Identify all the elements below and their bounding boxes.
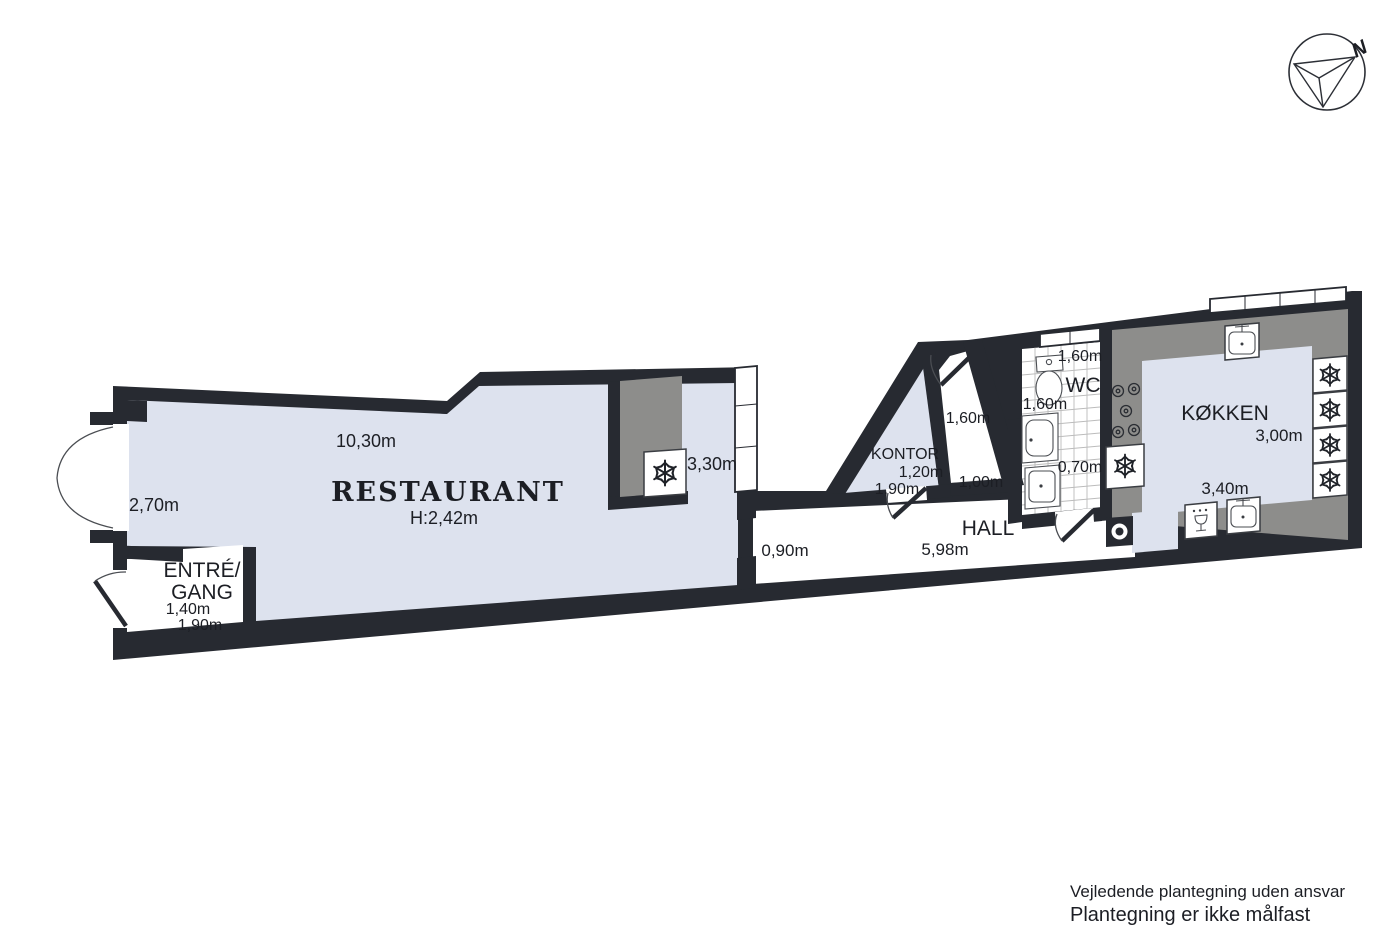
label-wc-dim-top: 1,60m [1058,348,1102,365]
label-hall-length: 5,98m [921,540,968,559]
compass: N [1289,34,1372,110]
kokken-left-freezer [1106,444,1144,489]
label-entre-dim2: 1,90m [178,617,222,634]
label-restaurant-dim-top: 10,30m [336,431,396,451]
label-kontor-dim1: 1,20m [899,464,943,481]
wc-left-wall [1008,418,1022,524]
kokken-right-freezers [1313,356,1347,498]
label-entre-line1: ENTRÉ/ [163,559,240,582]
label-mellemgang-dim2: 1,00m [959,474,1003,491]
label-kokken-dim-right: 3,00m [1255,426,1302,445]
kokken-top-sink-icon [1225,323,1259,360]
label-wc: WC [1066,374,1101,397]
compass-needle [1294,57,1355,107]
dishwasher-icon [1185,502,1217,539]
label-hall-door: 0,90m [761,541,808,560]
label-hall: HALL [962,517,1015,540]
entrance-double-door [57,412,129,543]
kokken-bottom-sink-icon [1227,497,1260,534]
label-kontor-dim2: 1,90m [875,481,919,498]
wc-sink-icon [1022,413,1058,463]
restaurant-right-wall-upper [737,488,756,520]
disclaimer-line1: Vejledende plantegning uden ansvar [1070,882,1345,901]
label-restaurant-dim-left: 2,70m [129,495,179,515]
pillar-step [420,400,447,414]
pillar-left [127,400,147,422]
window-restaurant-right [735,366,757,492]
label-restaurant-height: H:2,42m [410,508,478,528]
label-restaurant: RESTAURANT [331,477,565,508]
bar-freezer [644,449,686,497]
floor-drain-icon [1106,516,1133,547]
restaurant-right-wall-stub [737,556,756,590]
label-wc-dim-left: 1,60m [1023,396,1067,413]
entre-right-wall [243,547,256,621]
label-kokken: KØKKEN [1181,402,1269,425]
bar-left-wall [608,381,620,499]
label-mellemgang-dim1: 1,60m [946,410,990,427]
kokken-entry-floor [1132,509,1178,553]
label-restaurant-dim-right: 3,30m [687,454,737,474]
floor-plan-svg: N 10,30m RESTAURANT H:2,42m 2,70m 3,30m … [0,0,1400,933]
wc-utility-sink-icon [1025,465,1060,509]
floor-plan-page: N 10,30m RESTAURANT H:2,42m 2,70m 3,30m … [0,0,1400,933]
disclaimer-line2: Plantegning er ikke målfast [1070,904,1311,926]
entre-door [95,570,129,628]
label-wc-dim-bottom: 0,70m [1058,459,1102,476]
label-kokken-dim-bottom: 3,40m [1201,479,1248,498]
label-entre-dim1: 1,40m [166,601,210,618]
label-kontor: KONTOR [871,446,939,463]
